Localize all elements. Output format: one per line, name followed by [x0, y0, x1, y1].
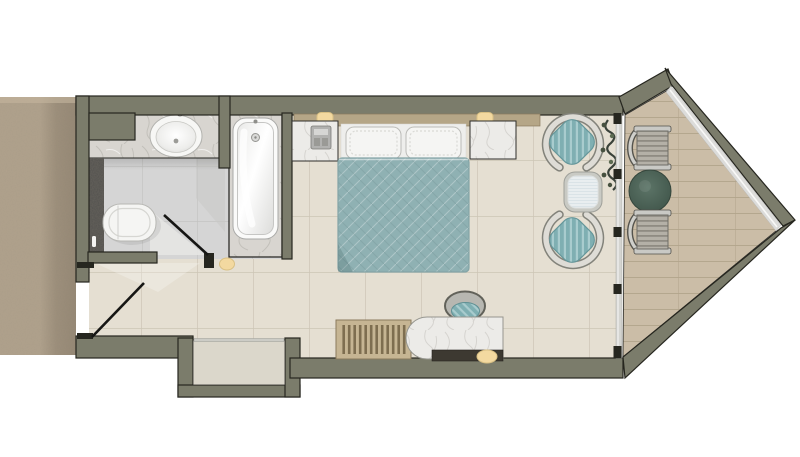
desk-chair	[445, 292, 485, 321]
pillow-right	[406, 127, 461, 159]
floor-plan	[0, 0, 800, 457]
door-jamb-lower	[77, 333, 93, 339]
lounge-chair-bottom	[545, 213, 600, 267]
duvet	[338, 158, 469, 272]
wall-left-upper	[76, 96, 89, 282]
toilet	[103, 204, 161, 245]
hallway-carpet	[0, 97, 76, 355]
side-table	[564, 172, 602, 212]
lounge-chair-top	[545, 115, 600, 169]
nightstand-right	[470, 121, 516, 159]
luggage-bench	[336, 320, 411, 359]
tub-faucet-icon	[254, 120, 258, 124]
entry-wall-sconce	[220, 258, 235, 270]
door-jamb-upper	[77, 262, 94, 268]
wall-left-lower	[76, 336, 193, 358]
wall-niche-bottom	[178, 385, 300, 397]
wall-bath-south	[88, 252, 157, 263]
double-bed	[338, 124, 469, 272]
balcony-round-table	[629, 170, 671, 212]
wall-top	[76, 96, 623, 115]
sink	[150, 115, 202, 157]
telephone	[311, 126, 331, 149]
wall-vanity-bump	[89, 113, 135, 140]
vanity-shadow	[89, 158, 219, 170]
dark-feature-wall	[89, 158, 104, 253]
wall-pier	[219, 96, 230, 168]
bath-door-hinge-stub	[204, 253, 214, 268]
bathtub	[229, 114, 282, 257]
desk-wall-sconce	[477, 350, 497, 363]
wall-bath-partition	[282, 113, 292, 259]
entry-niche	[193, 339, 285, 386]
pillow-left	[346, 127, 401, 159]
